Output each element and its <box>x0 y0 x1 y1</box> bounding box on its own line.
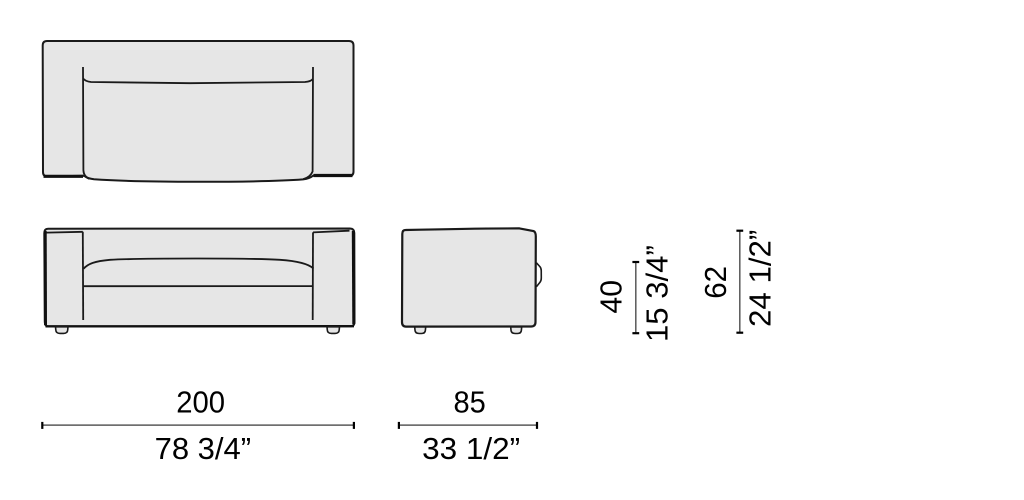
svg-text:40: 40 <box>594 280 629 314</box>
svg-text:62: 62 <box>698 266 733 299</box>
svg-text:33 1/2”: 33 1/2” <box>422 431 520 466</box>
svg-text:24 1/2”: 24 1/2” <box>743 230 778 327</box>
svg-text:85: 85 <box>454 385 486 420</box>
svg-text:78 3/4”: 78 3/4” <box>155 431 252 466</box>
svg-text:15 3/4”: 15 3/4” <box>640 245 675 342</box>
svg-text:200: 200 <box>176 385 225 420</box>
